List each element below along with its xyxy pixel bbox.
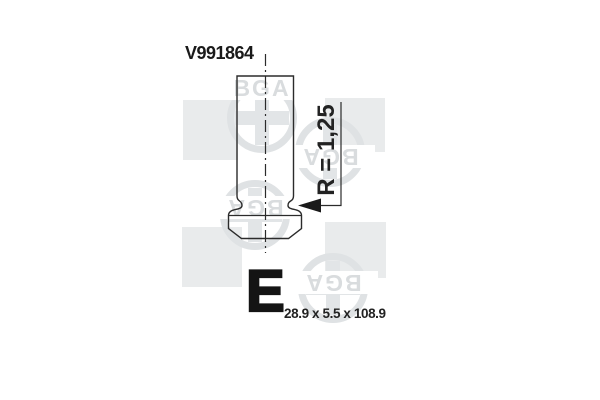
dimensions-label: 28.9 x 5.5 x 108.9 xyxy=(284,306,386,321)
valve-technical-drawing: BGA BGA BGA BGA V xyxy=(0,0,600,400)
valve-type-letter: E xyxy=(246,266,285,318)
radius-label: R = 1,25 xyxy=(312,85,342,215)
part-number: V991864 xyxy=(185,43,254,64)
valve-outline-drawing xyxy=(0,0,600,400)
